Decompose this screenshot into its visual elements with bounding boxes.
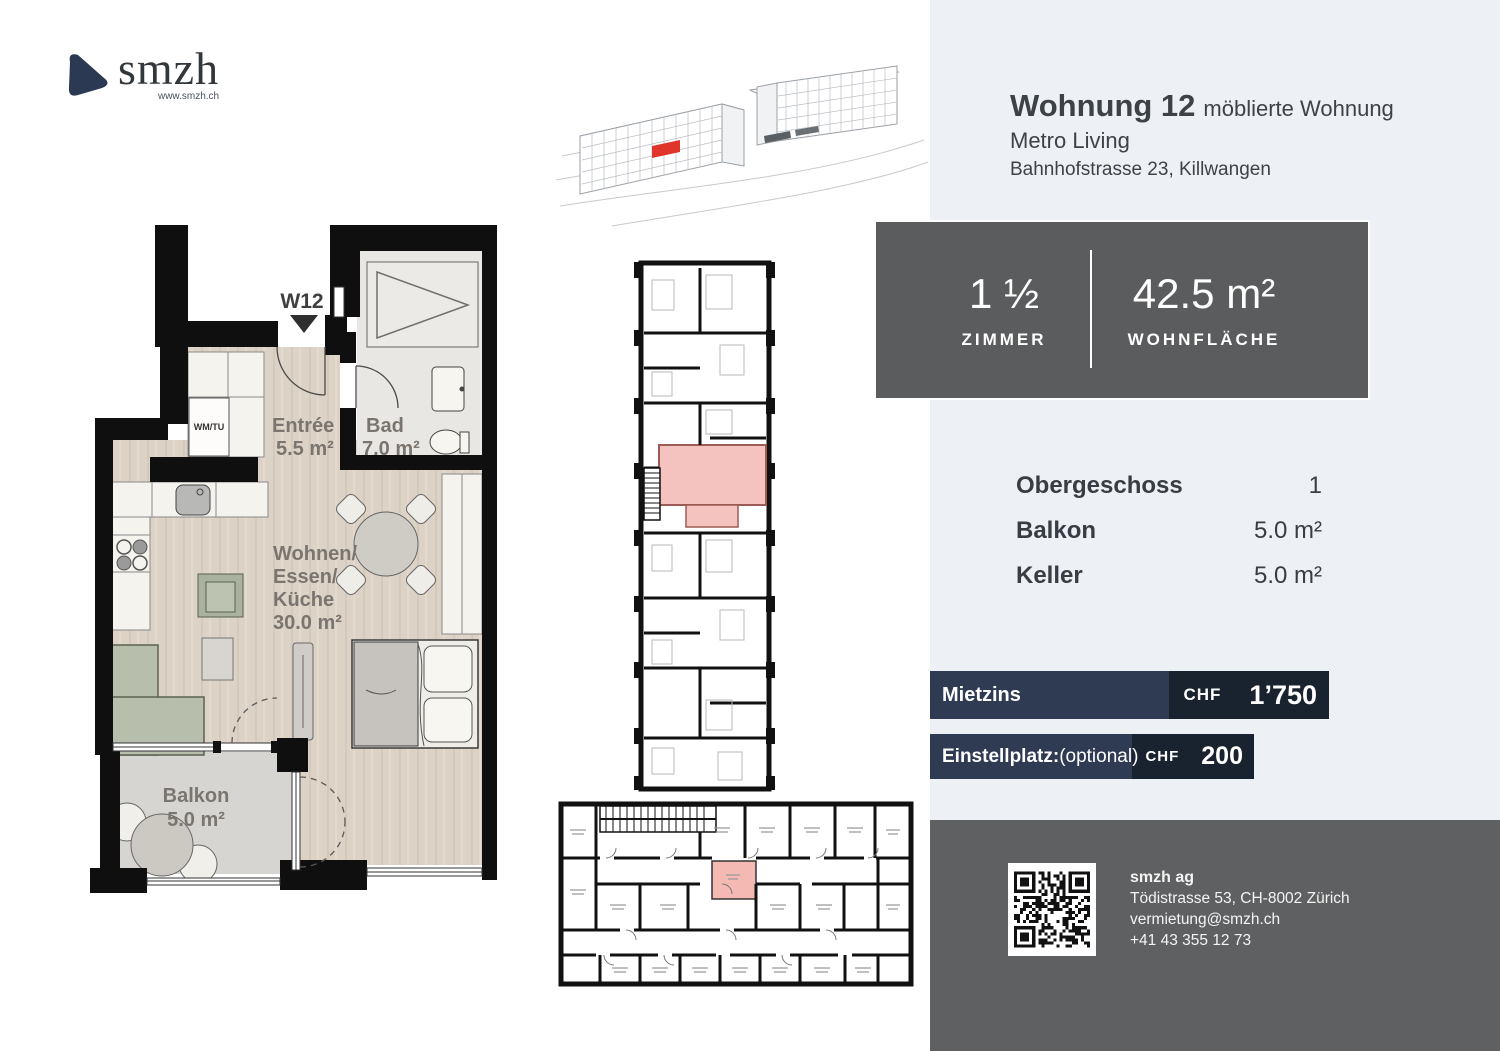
kitchen-sink <box>176 485 210 515</box>
rent-label: Mietzins <box>942 684 1021 707</box>
parking-amount: 200 <box>1201 742 1243 771</box>
building-right <box>750 63 898 145</box>
rooms-label: ZIMMER <box>894 330 1114 350</box>
rent-bar: Mietzins CHF 1’750 <box>930 671 1329 719</box>
area-label: WOHNFLÄCHE <box>1094 330 1314 350</box>
detail-row-balkon: Balkon 5.0 m² <box>1016 517 1322 545</box>
detail-label: Balkon <box>1016 517 1096 545</box>
project-name: Metro Living <box>1010 128 1470 154</box>
toilet <box>430 430 469 454</box>
bad-area: 7.0 m² <box>362 438 420 460</box>
contact-company: smzh ag <box>1130 867 1350 888</box>
wohnen-label-3: Küche <box>273 589 334 611</box>
qr-code <box>1008 863 1096 956</box>
basement-stairs <box>600 806 716 832</box>
logo-wordmark: smzh <box>118 42 219 95</box>
building-left <box>580 98 744 198</box>
detail-label: Obergeschoss <box>1016 472 1183 500</box>
stairwell <box>644 468 660 520</box>
page-subtitle: möblierte Wohnung <box>1203 96 1393 121</box>
wohnen-label-1: Wohnen/ <box>273 543 358 565</box>
smzh-logo: smzh www.smzh.ch <box>64 50 112 100</box>
detail-row-obergeschoss: Obergeschoss 1 <box>1016 472 1322 500</box>
parking-label: Einstellplatz: <box>942 746 1059 768</box>
rent-label-cell: Mietzins <box>930 671 1169 719</box>
info-divider <box>1090 250 1092 368</box>
factsheet-page: smzh www.smzh.ch <box>0 0 1500 1051</box>
highlighted-cellar <box>712 861 756 899</box>
armchair-cushion <box>206 582 235 612</box>
entree-label: Entrée <box>272 415 334 437</box>
unit-marker-arrow-icon <box>290 315 318 333</box>
parking-bar: Einstellplatz:(optional) CHF 200 <box>930 734 1254 779</box>
parking-currency: CHF <box>1145 748 1179 765</box>
unit-header: Wohnung 12möblierte Wohnung Metro Living… <box>1010 88 1470 181</box>
washbasin <box>432 367 464 411</box>
parking-amount-cell: CHF 200 <box>1132 734 1254 779</box>
parking-label-cell: Einstellplatz:(optional) <box>930 734 1132 779</box>
smzh-logo-icon <box>64 50 112 100</box>
contact-block: smzh ag Tödistrasse 53, CH-8002 Zürich v… <box>1130 867 1350 951</box>
project-address: Bahnhofstrasse 23, Killwangen <box>1010 159 1470 181</box>
detail-value: 5.0 m² <box>1254 517 1322 545</box>
contact-phone: +41 43 355 12 73 <box>1130 930 1350 951</box>
detail-label: Keller <box>1016 562 1083 590</box>
balkon-label: Balkon <box>163 785 230 807</box>
bed <box>352 640 478 748</box>
rent-amount: 1’750 <box>1249 680 1317 711</box>
contact-email: vermietung@smzh.ch <box>1130 909 1350 930</box>
contact-address: Tödistrasse 53, CH-8002 Zürich <box>1130 888 1350 909</box>
bad-label: Bad <box>366 415 404 437</box>
unit-info-box: 1 ½ ZIMMER 42.5 m² WOHNFLÄCHE <box>876 222 1368 398</box>
living-floor-south <box>300 745 484 865</box>
rent-currency: CHF <box>1183 685 1221 705</box>
rooms-value: 1 ½ <box>894 270 1114 318</box>
contact-footer: smzh ag Tödistrasse 53, CH-8002 Zürich v… <box>930 820 1500 1051</box>
entry-window <box>334 287 344 317</box>
highlighted-unit-ext <box>686 505 738 527</box>
parking-label-suffix: (optional) <box>1059 746 1138 768</box>
coffee-table <box>202 638 233 680</box>
area-value: 42.5 m² <box>1094 270 1314 318</box>
rent-amount-cell: CHF 1’750 <box>1169 671 1329 719</box>
washbasin-tap <box>460 387 465 392</box>
site-overview-sketch <box>552 28 932 233</box>
detail-list: Obergeschoss 1 Balkon 5.0 m² Keller 5.0 … <box>1016 472 1322 607</box>
unit-marker-label: W12 <box>280 290 323 313</box>
apartment-floorplan: WM/TU <box>85 213 500 893</box>
detail-value: 1 <box>1309 472 1322 500</box>
sliding-door <box>213 741 279 753</box>
entree-area: 5.5 m² <box>276 438 334 460</box>
wohnen-label-2: Essen/ <box>273 566 338 588</box>
wohnen-area: 30.0 m² <box>273 612 342 634</box>
highlighted-unit <box>659 445 766 505</box>
basement-floorplan <box>556 798 916 990</box>
wm-tu-label: WM/TU <box>194 422 225 432</box>
balkon-area: 5.0 m² <box>167 809 225 831</box>
building-floorplan <box>628 251 782 799</box>
page-title: Wohnung 12 <box>1010 88 1195 123</box>
detail-row-keller: Keller 5.0 m² <box>1016 562 1322 590</box>
detail-value: 5.0 m² <box>1254 562 1322 590</box>
